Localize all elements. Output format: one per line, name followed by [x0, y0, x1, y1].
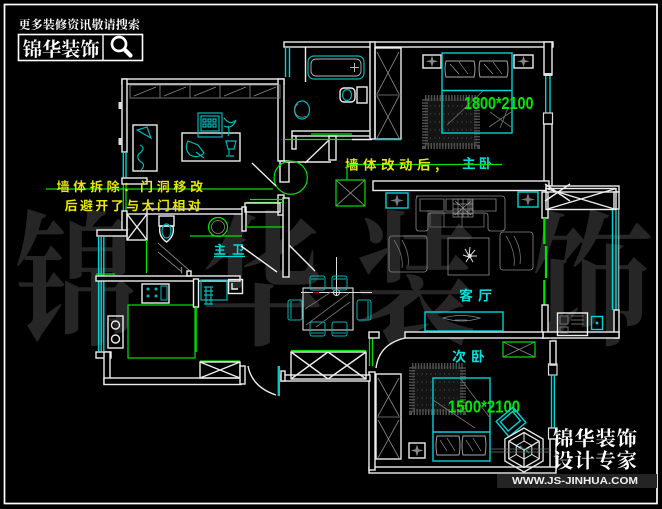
svg-text:WWW.JS-JINHUA.COM: WWW.JS-JINHUA.COM [512, 476, 638, 487]
svg-text:1800*2100: 1800*2100 [464, 93, 534, 113]
